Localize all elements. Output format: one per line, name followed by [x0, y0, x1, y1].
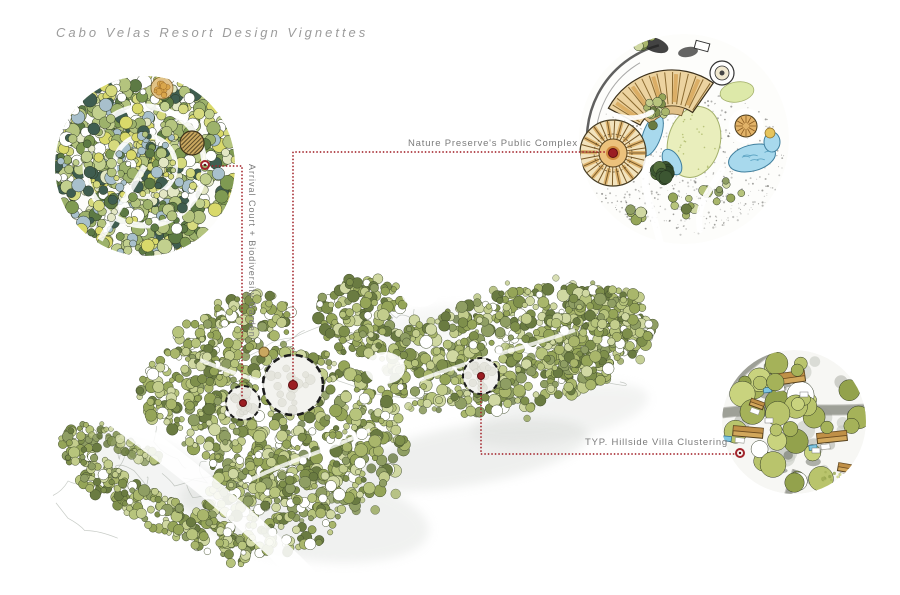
vignette-hillside-villas [722, 349, 870, 495]
design-vignettes-canvas [0, 0, 900, 595]
site-plan-illustration [53, 274, 658, 582]
callout-label-hillside-villa: TYP. Hillside Villa Clustering [528, 437, 728, 448]
callout-marker-dot [609, 149, 618, 158]
callout-marker-dot [478, 373, 485, 380]
page-title: Cabo Velas Resort Design Vignettes [56, 25, 368, 40]
vignette-nature-preserve [579, 33, 789, 244]
callout-label-arrival-court: Arrival Court + Biodiversity Garden [247, 164, 257, 338]
callout-label-nature-preserve: Nature Preserve's Public Complex [378, 138, 578, 149]
callout-marker-dot [289, 381, 298, 390]
callout-marker-dot [240, 400, 247, 407]
design-vignettes-page: Cabo Velas Resort Design Vignettes Arriv… [0, 0, 900, 595]
